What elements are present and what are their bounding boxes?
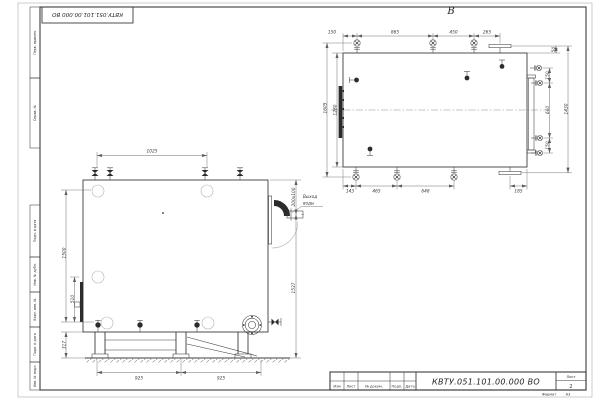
sheet-label: Лист — [566, 375, 575, 379]
margin-block: Взам. инв. № — [30, 292, 40, 327]
note-text: воды — [303, 201, 315, 206]
right-rail — [527, 75, 536, 153]
margin-label: Справ. № — [33, 104, 37, 121]
dim-text: 150 — [545, 141, 551, 149]
dim-text: 465 — [372, 189, 380, 195]
dim-front-top: 1025 — [97, 149, 207, 168]
dim-text: 50 — [551, 47, 557, 53]
dim-front-bottom: 925 925 — [97, 360, 261, 382]
drain-valve — [268, 318, 281, 326]
margin-label: Инв. № дубл. — [33, 263, 37, 286]
margin-block: Подп. и дата — [30, 327, 40, 362]
margin-block: Подп. и дата — [30, 205, 40, 257]
margin-label: Инв. № подл. — [33, 365, 37, 388]
dim-text: 143 — [346, 189, 354, 195]
view-front: Выход воды — [61, 149, 323, 382]
dim-text: 925 — [135, 376, 143, 382]
dim-front-left: 1500 510 317 — [61, 190, 94, 358]
titleblock-col: № докум. — [365, 385, 383, 389]
dim-text: 1500 — [61, 247, 67, 258]
dim-text: 317 — [61, 341, 67, 349]
dim-text: 510 — [70, 295, 76, 303]
view-label: В — [446, 6, 454, 17]
dim-text: 185 — [514, 189, 522, 195]
dim-text: 1280 — [332, 104, 338, 115]
top-left-stamp: КВТУ.051.101.00.000 ВО — [42, 7, 133, 23]
titleblock-col: Лист — [346, 385, 355, 389]
dim-50: 50 — [511, 46, 572, 53]
water-outlet — [269, 196, 304, 248]
margin-column: Перв. примен. Справ. № Подп. и дата Инв.… — [30, 7, 40, 390]
interior-fittings — [350, 60, 506, 155]
flange-top — [489, 45, 511, 54]
margin-block: Инв. № дубл. — [30, 257, 40, 292]
margin-block: Перв. примен. — [30, 7, 40, 78]
flange-bottom — [499, 167, 521, 175]
dim-text: 925 — [217, 376, 225, 382]
dim-text: 648 — [421, 189, 429, 195]
titleblock-col: Дата — [405, 385, 414, 389]
dim-text: 1430 — [563, 103, 569, 114]
margin-block: Инв. № подл. — [30, 362, 40, 390]
ground-line — [85, 358, 290, 363]
dim-text: 1025 — [147, 149, 158, 155]
dim-text: 265 — [483, 30, 491, 36]
sheet-number: 2 — [569, 384, 572, 390]
dim-text: 865 — [391, 30, 399, 36]
support-legs — [92, 332, 257, 358]
titleblock-col: Изм — [333, 385, 341, 389]
note-text: Выход — [303, 194, 317, 199]
dim-text: 660 — [545, 106, 551, 114]
dim-text: 150 — [328, 30, 336, 36]
dim-text: 150 — [545, 71, 551, 79]
dim-text: 1537 — [291, 282, 297, 293]
title-block: Изм Лист № докум. Подп. Дата КВТУ.051.10… — [330, 372, 586, 397]
bottom-flange — [243, 316, 262, 335]
stamp-designation: КВТУ.051.101.00.000 ВО — [51, 11, 123, 17]
format-label: Формат — [542, 393, 557, 397]
margin-block: Справ. № — [30, 78, 40, 148]
dim-chain-bottom: 143 465 648 185 — [343, 169, 527, 195]
drawing-designation: КВТУ.051.101.00.000 ВО — [432, 378, 540, 387]
margin-label: Подп. и дата — [33, 333, 37, 355]
dim-text: 450 — [449, 30, 457, 36]
boiler-body-front — [83, 180, 268, 332]
format-value: А3 — [566, 393, 571, 397]
margin-label: Перв. примен. — [33, 30, 37, 55]
dim-text: 1605 — [322, 102, 328, 113]
view-top: В — [322, 6, 572, 195]
margin-label: Взам. инв. № — [33, 298, 37, 321]
drawing-sheet: Перв. примен. Справ. № Подп. и дата Инв.… — [0, 0, 600, 400]
titleblock-col: Подп. — [392, 385, 403, 389]
dim-text: 200х100 — [291, 187, 297, 206]
drawing-canvas: Перв. примен. Справ. № Подп. и дата Инв.… — [0, 0, 600, 400]
margin-label: Подп. и дата — [33, 220, 37, 242]
